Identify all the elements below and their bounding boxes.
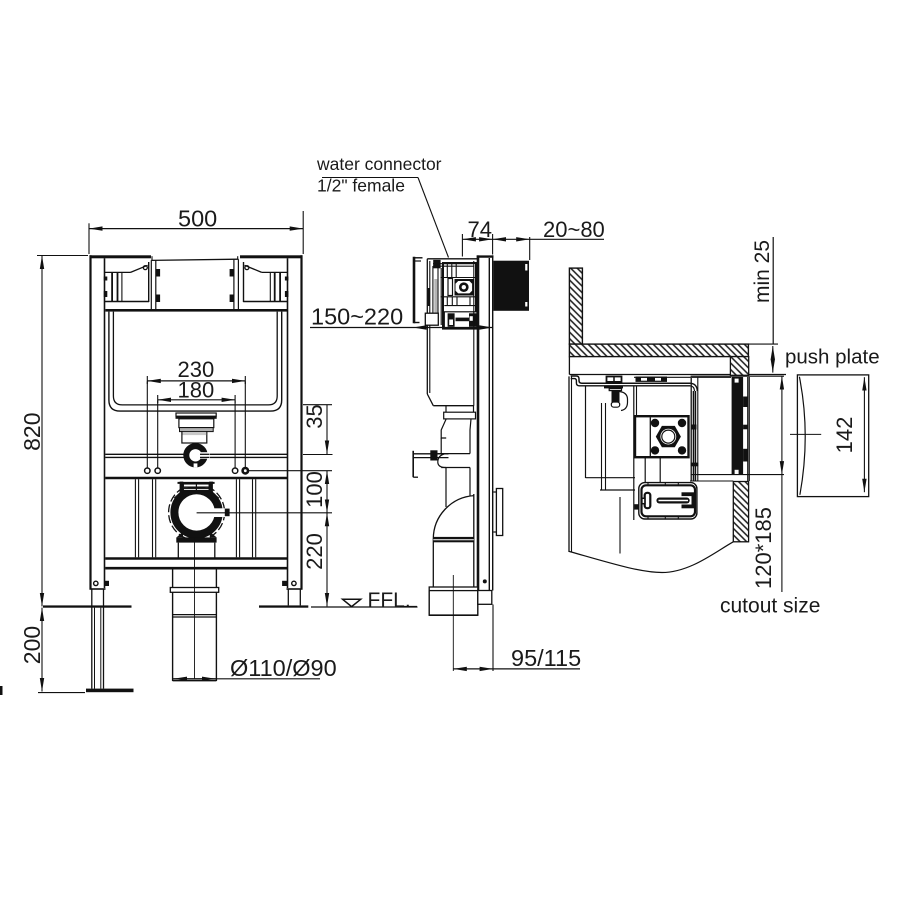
svg-text:220: 220 <box>302 533 327 570</box>
svg-text:150~220: 150~220 <box>311 304 403 330</box>
svg-text:120*185: 120*185 <box>751 507 776 589</box>
svg-text:820: 820 <box>19 413 45 451</box>
svg-text:500: 500 <box>178 206 217 232</box>
svg-text:100: 100 <box>302 471 327 508</box>
svg-text:water connector: water connector <box>316 154 442 174</box>
svg-text:cutout size: cutout size <box>720 594 820 617</box>
svg-text:200: 200 <box>19 626 45 664</box>
svg-text:20~80: 20~80 <box>543 217 605 242</box>
svg-text:1/2" female: 1/2" female <box>317 176 405 196</box>
svg-text:35: 35 <box>302 404 327 428</box>
svg-text:95/115: 95/115 <box>511 645 581 671</box>
svg-text:FFL.: FFL. <box>368 589 411 612</box>
svg-text:min 25: min 25 <box>751 240 774 303</box>
svg-text:180: 180 <box>178 377 215 402</box>
svg-text:142: 142 <box>832 417 857 454</box>
svg-text:74: 74 <box>468 217 492 242</box>
svg-text:Ø110/Ø90: Ø110/Ø90 <box>230 655 337 681</box>
svg-text:push plate: push plate <box>785 346 880 369</box>
